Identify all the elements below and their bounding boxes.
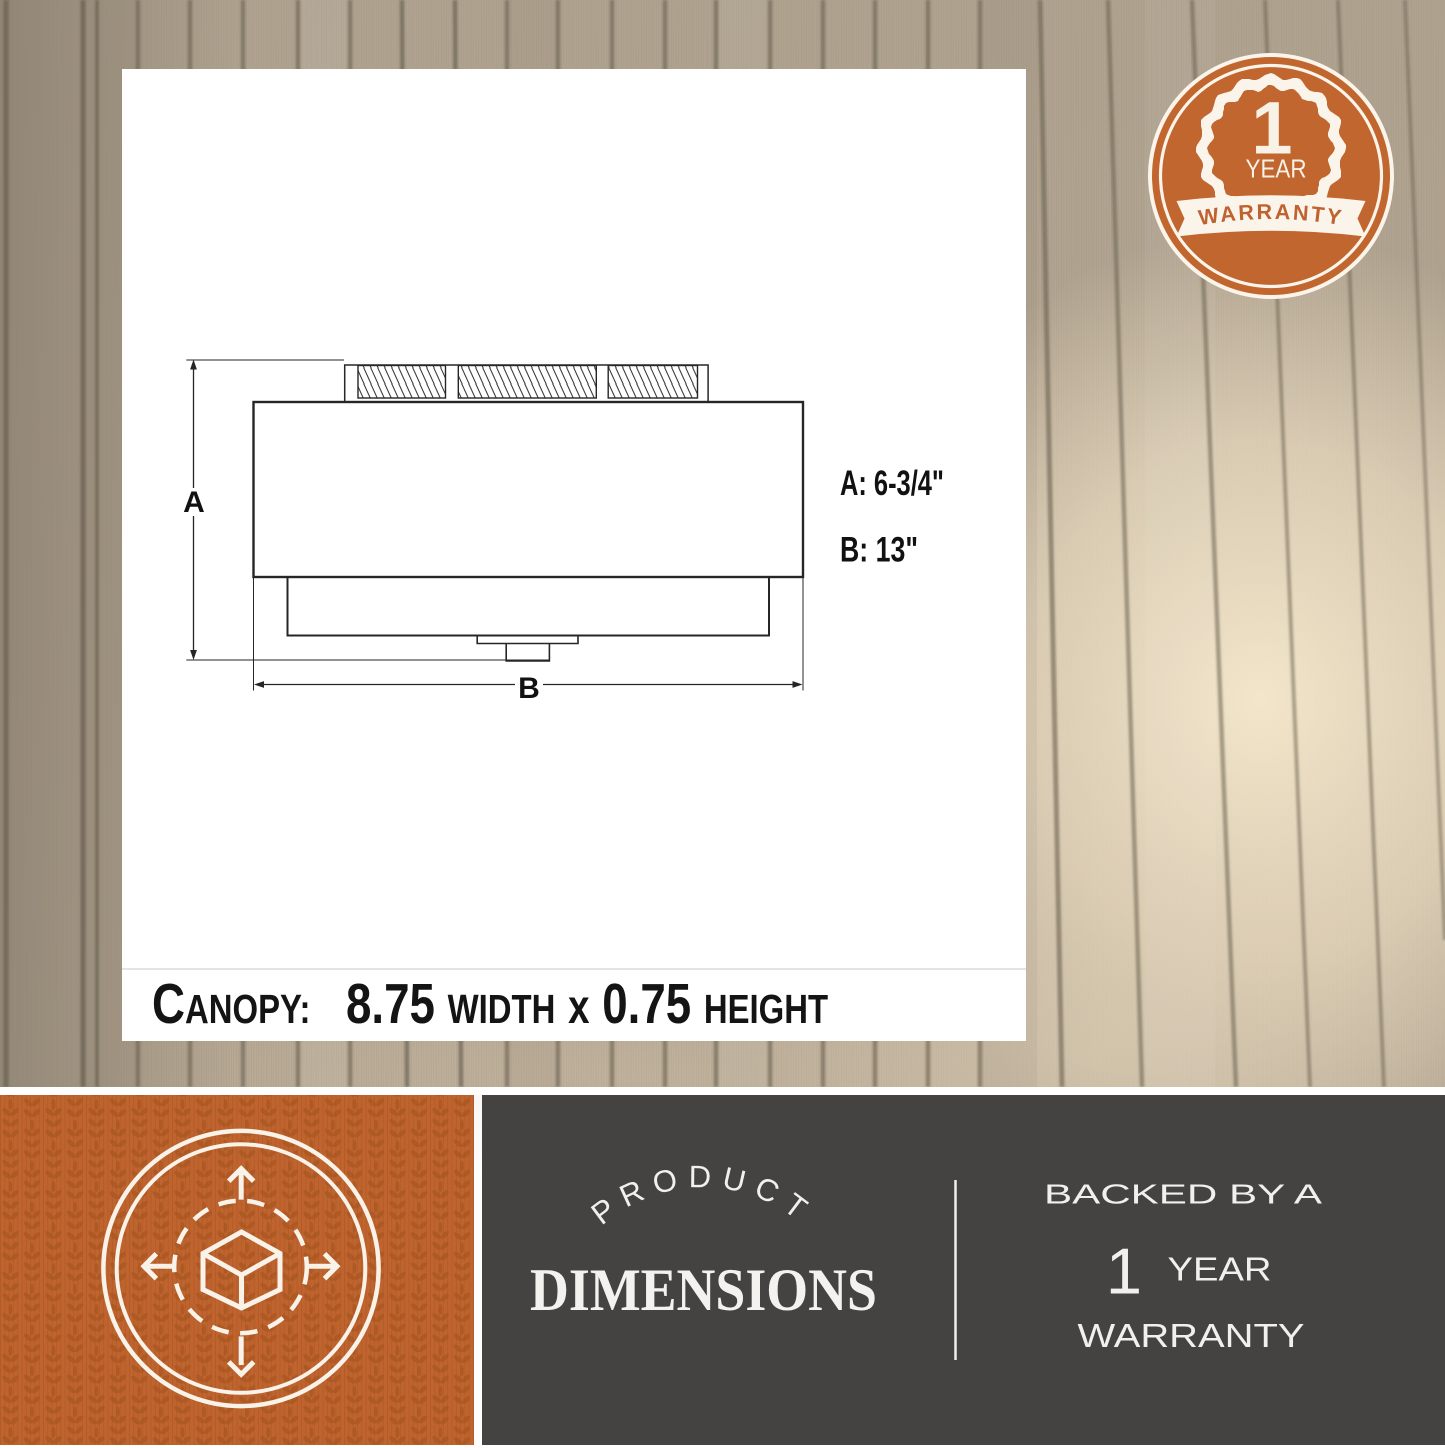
svg-text:1: 1 [1106, 1235, 1142, 1308]
svg-text:YEAR: YEAR [1168, 1251, 1272, 1288]
svg-text:DIMENSIONS: DIMENSIONS [530, 1257, 877, 1323]
svg-text:B: B [518, 672, 540, 705]
svg-text:BACKED BY A: BACKED BY A [1044, 1179, 1322, 1210]
svg-text:A: 6-3/4": A: 6-3/4" [840, 464, 944, 503]
svg-text:YEAR: YEAR [1246, 154, 1307, 184]
svg-text:WARRANTY: WARRANTY [1078, 1317, 1305, 1354]
svg-text:B: 13": B: 13" [840, 531, 918, 570]
svg-text:A: A [183, 486, 205, 519]
